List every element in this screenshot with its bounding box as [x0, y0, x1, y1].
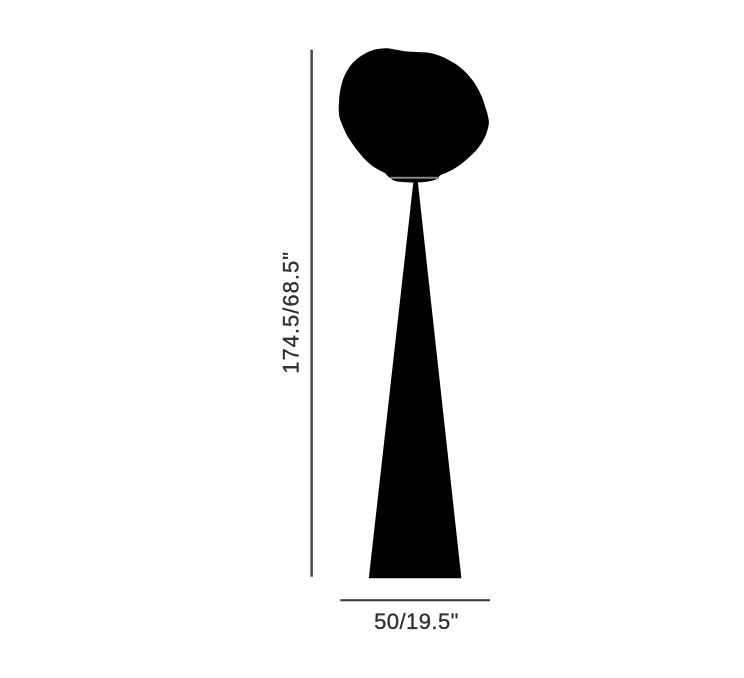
- svg-text:174.5/68.5": 174.5/68.5": [279, 251, 304, 374]
- svg-text:50/19.5": 50/19.5": [374, 609, 459, 634]
